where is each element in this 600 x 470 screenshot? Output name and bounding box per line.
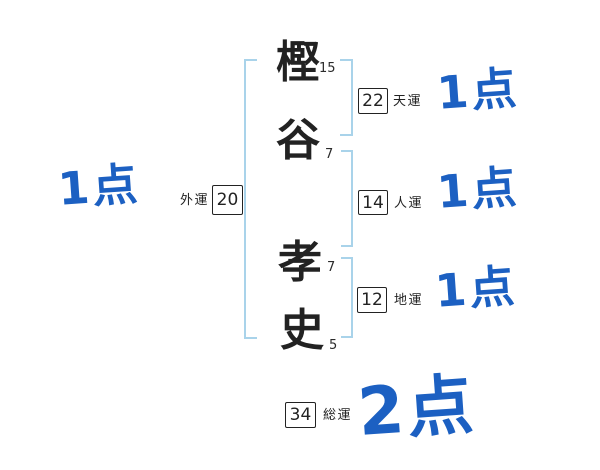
person-luck-score: 1点 <box>436 164 521 215</box>
stroke-count-1: 15 <box>319 62 336 75</box>
name-char-3: 孝 <box>278 241 322 285</box>
stroke-count-2: 7 <box>325 148 333 161</box>
stroke-count-4: 5 <box>329 339 337 352</box>
person-luck-bracket <box>341 150 353 247</box>
heaven-luck-bracket <box>340 59 353 136</box>
name-char-1: 樫 <box>276 41 320 85</box>
name-char-4: 史 <box>280 309 324 353</box>
outer-luck-bracket <box>244 59 257 339</box>
heaven-luck-score: 1点 <box>436 65 521 116</box>
earth-luck-score: 1点 <box>434 263 519 314</box>
outer-luck-label: 外運 <box>180 194 209 207</box>
outer-luck-value-box: 20 <box>212 185 243 215</box>
stroke-count-3: 7 <box>327 261 335 274</box>
person-luck-value-box: 14 <box>358 190 388 215</box>
total-luck-score: 2点 <box>356 372 478 446</box>
earth-luck-bracket <box>341 257 353 338</box>
total-luck-value-box: 34 <box>285 402 316 428</box>
name-char-2: 谷 <box>276 119 320 163</box>
earth-luck-value-box: 12 <box>357 287 387 313</box>
person-luck-label: 人運 <box>394 197 423 210</box>
name-fortune-diagram: 1点 外運 20 樫 15 谷 7 孝 7 史 5 22 天運 1点 14 人運… <box>0 0 600 470</box>
heaven-luck-value-box: 22 <box>358 88 388 114</box>
total-luck-label: 総運 <box>323 409 352 422</box>
heaven-luck-label: 天運 <box>393 95 422 108</box>
outer-luck-score: 1点 <box>57 161 142 212</box>
earth-luck-label: 地運 <box>394 294 423 307</box>
